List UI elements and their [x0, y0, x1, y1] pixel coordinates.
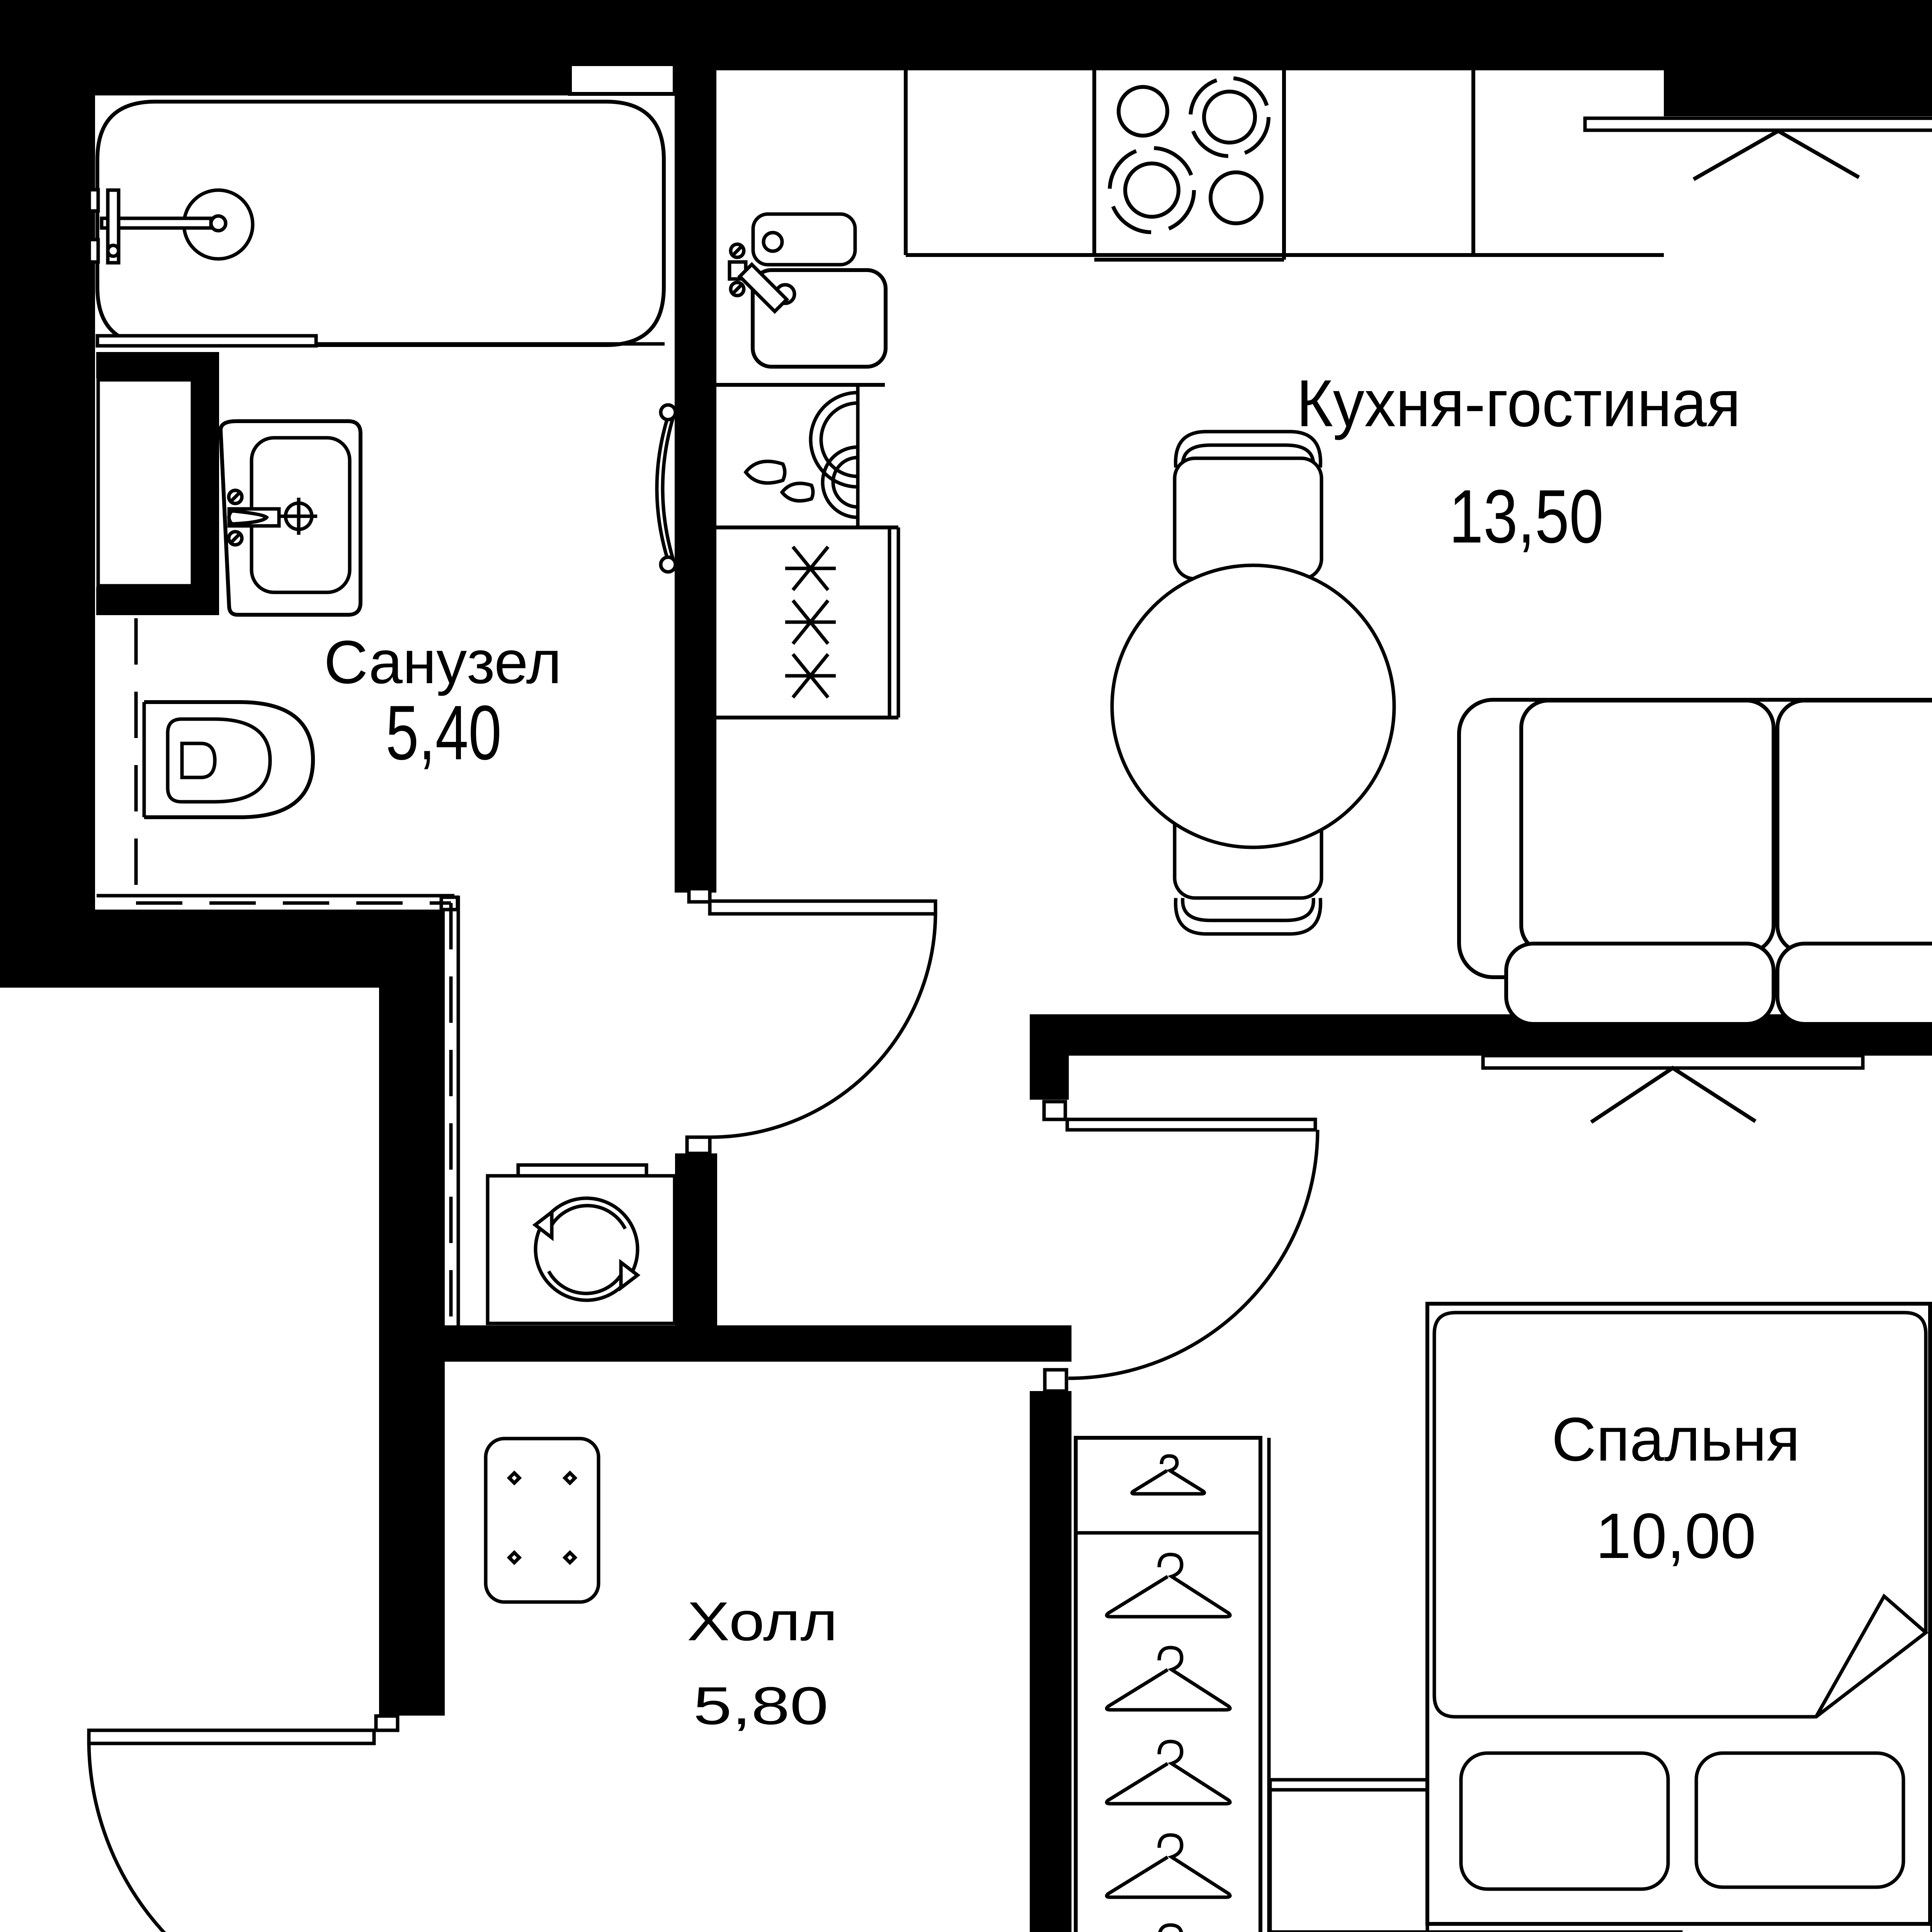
svg-text:5,80: 5,80	[693, 1676, 828, 1736]
svg-text:Санузел: Санузел	[324, 628, 562, 696]
svg-text:5,40: 5,40	[386, 690, 502, 776]
svg-text:10,00: 10,00	[1595, 1500, 1756, 1572]
svg-text:13,50: 13,50	[1449, 474, 1604, 559]
svg-text:Кухня-гостиная: Кухня-гостиная	[1296, 366, 1741, 440]
svg-text:Спальня: Спальня	[1552, 1405, 1800, 1474]
svg-text:Холл: Холл	[687, 1591, 838, 1652]
